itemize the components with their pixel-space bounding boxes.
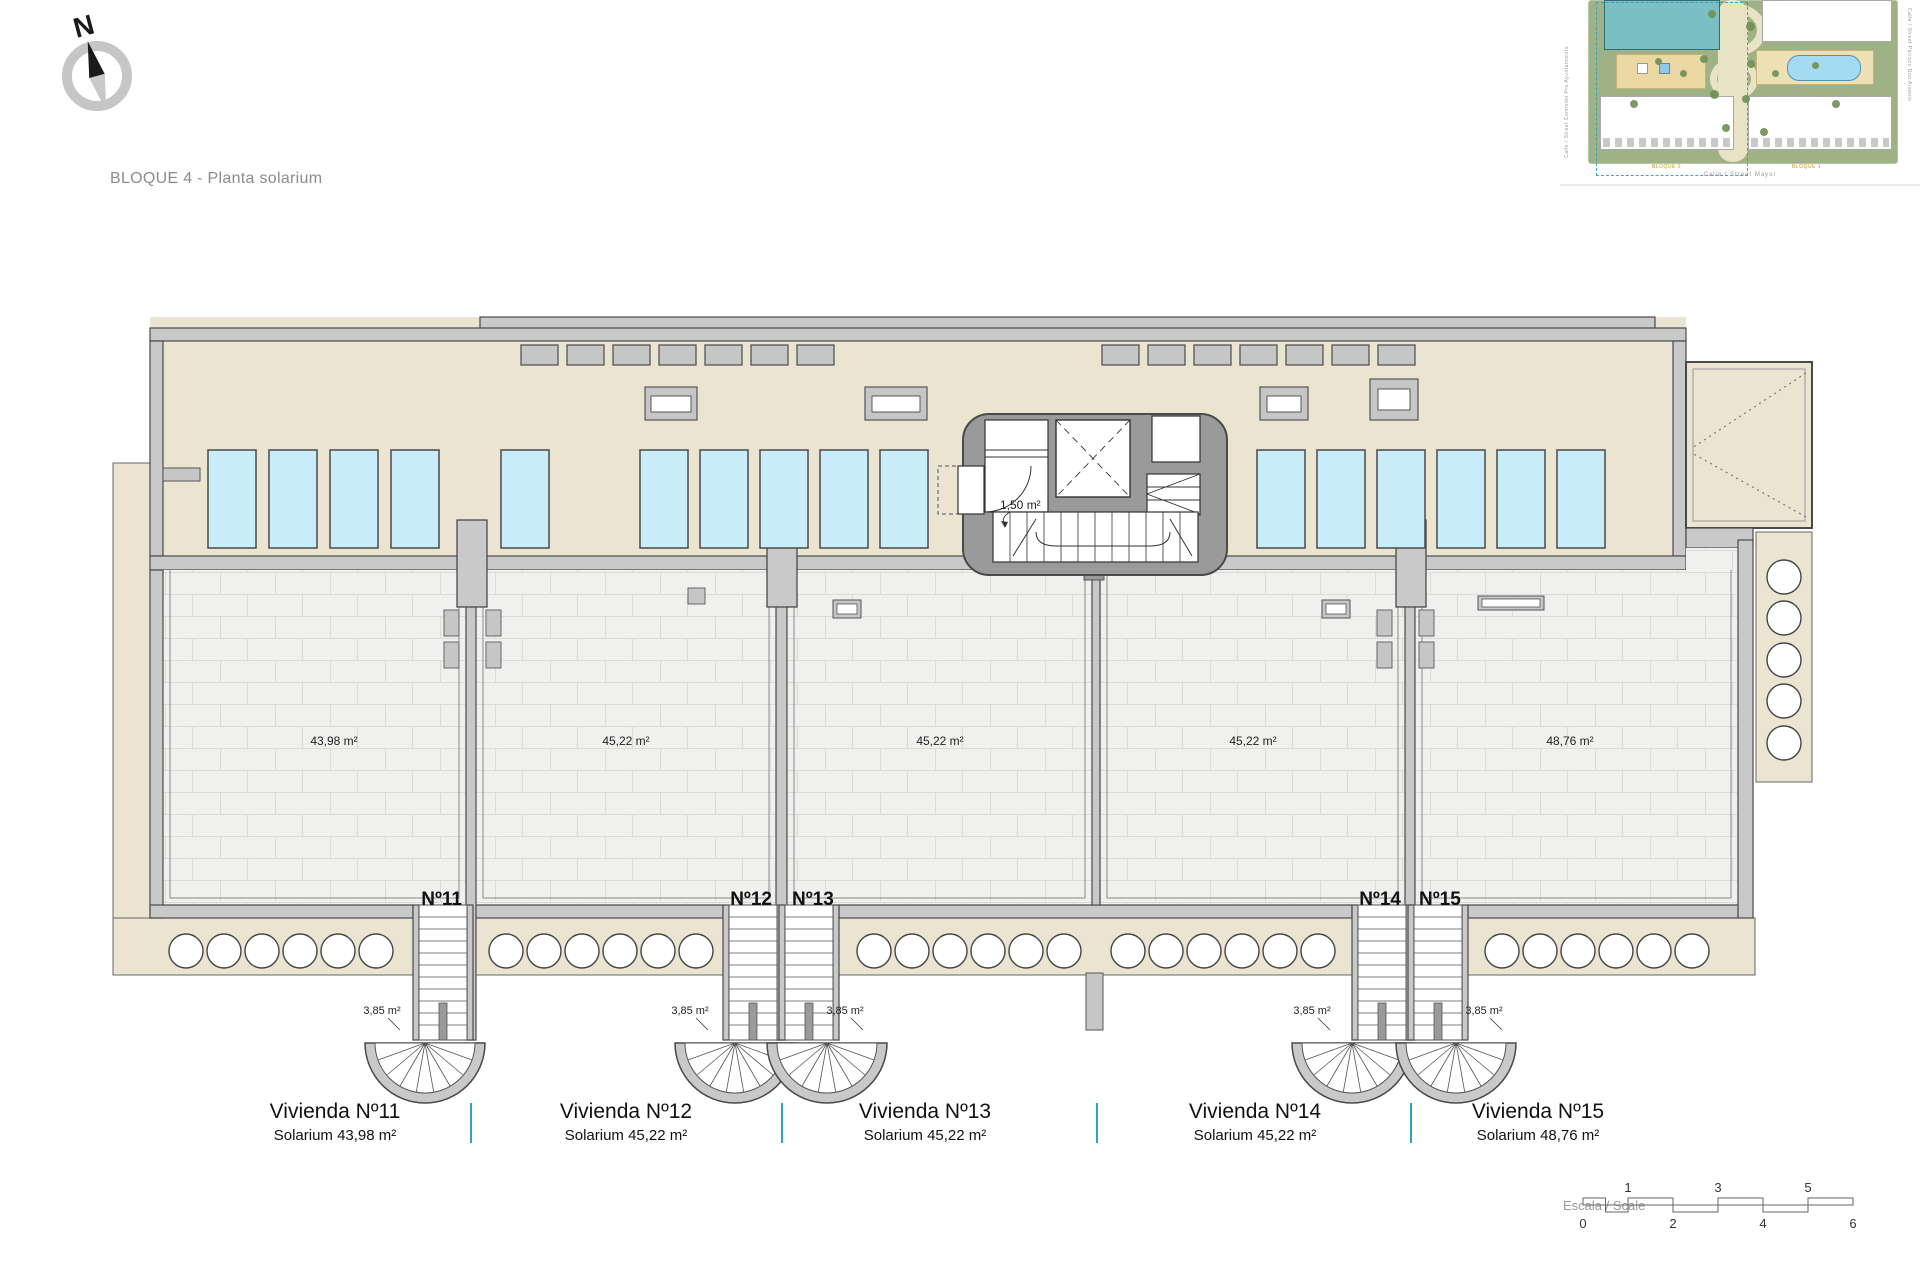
roof-annex: [1686, 362, 1812, 548]
unit-number-label: Nº14: [1359, 889, 1401, 910]
stair-area-label: 3,85 m²: [1465, 1005, 1503, 1017]
unit-caption-title: Vivienda Nº13: [795, 1100, 1055, 1124]
stair-area-label: 3,85 m²: [363, 1005, 401, 1017]
unit-caption-title: Vivienda Nº15: [1408, 1100, 1668, 1124]
terrace-area-label: 45,22 m²: [1229, 734, 1276, 748]
terrace-area-label: 48,76 m²: [1546, 734, 1593, 748]
unit-number-label: Nº11: [421, 889, 462, 910]
unit-caption-n11: Vivienda Nº11 Solarium 43,98 m²: [205, 1100, 465, 1144]
scale-bar: Escala / Scale 1 3 5 0 2 4 6: [1460, 1170, 1920, 1245]
caption-divider: [1410, 1103, 1412, 1143]
stair-area-label: 3,85 m²: [826, 1005, 864, 1017]
unit-caption-title: Vivienda Nº11: [205, 1100, 465, 1124]
scale-tick: 1: [1624, 1180, 1631, 1195]
caption-divider: [470, 1103, 472, 1143]
unit-caption-n15: Vivienda Nº15 Solarium 48,76 m²: [1408, 1100, 1668, 1144]
unit-number-label: Nº15: [1419, 889, 1461, 910]
scale-tick: 2: [1669, 1216, 1676, 1231]
terrace-area-label: 43,98 m²: [310, 734, 357, 748]
stair-core: 1,50 m²: [938, 414, 1227, 580]
unit-caption-subtitle: Solarium 45,22 m²: [795, 1127, 1055, 1144]
unit-caption-title: Vivienda Nº14: [1125, 1100, 1385, 1124]
scale-tick: 5: [1804, 1180, 1811, 1195]
scale-tick: 4: [1759, 1216, 1766, 1231]
terrace-area-label: 45,22 m²: [602, 734, 649, 748]
floor-plan-sheet: N BLOQUE 4 - Planta solarium: [0, 0, 1920, 1280]
stair-area-label: 3,85 m²: [671, 1005, 709, 1017]
caption-divider: [781, 1103, 783, 1143]
unit-caption-subtitle: Solarium 43,98 m²: [205, 1127, 465, 1144]
unit-number-label: Nº12: [730, 889, 772, 910]
scale-tick: 6: [1849, 1216, 1856, 1231]
unit-caption-n14: Vivienda Nº14 Solarium 45,22 m²: [1125, 1100, 1385, 1144]
unit-caption-subtitle: Solarium 45,22 m²: [1125, 1127, 1385, 1144]
unit-caption-n13: Vivienda Nº13 Solarium 45,22 m²: [795, 1100, 1055, 1144]
scale-tick: 0: [1579, 1216, 1586, 1231]
caption-divider: [1096, 1103, 1098, 1143]
sunbeds: [208, 450, 1605, 548]
stair-area-label: 3,85 m²: [1293, 1005, 1331, 1017]
floor-plan-drawing: 1,50 m²: [0, 0, 1920, 1280]
unit-caption-title: Vivienda Nº12: [496, 1100, 756, 1124]
unit-caption-n12: Vivienda Nº12 Solarium 45,22 m²: [496, 1100, 756, 1144]
terrace-area-label: 45,22 m²: [916, 734, 963, 748]
scale-tick: 3: [1714, 1180, 1721, 1195]
core-room-area-label: 1,50 m²: [1000, 498, 1041, 512]
unit-caption-subtitle: Solarium 48,76 m²: [1408, 1127, 1668, 1144]
unit-caption-subtitle: Solarium 45,22 m²: [496, 1127, 756, 1144]
unit-number-label: Nº13: [792, 889, 834, 910]
